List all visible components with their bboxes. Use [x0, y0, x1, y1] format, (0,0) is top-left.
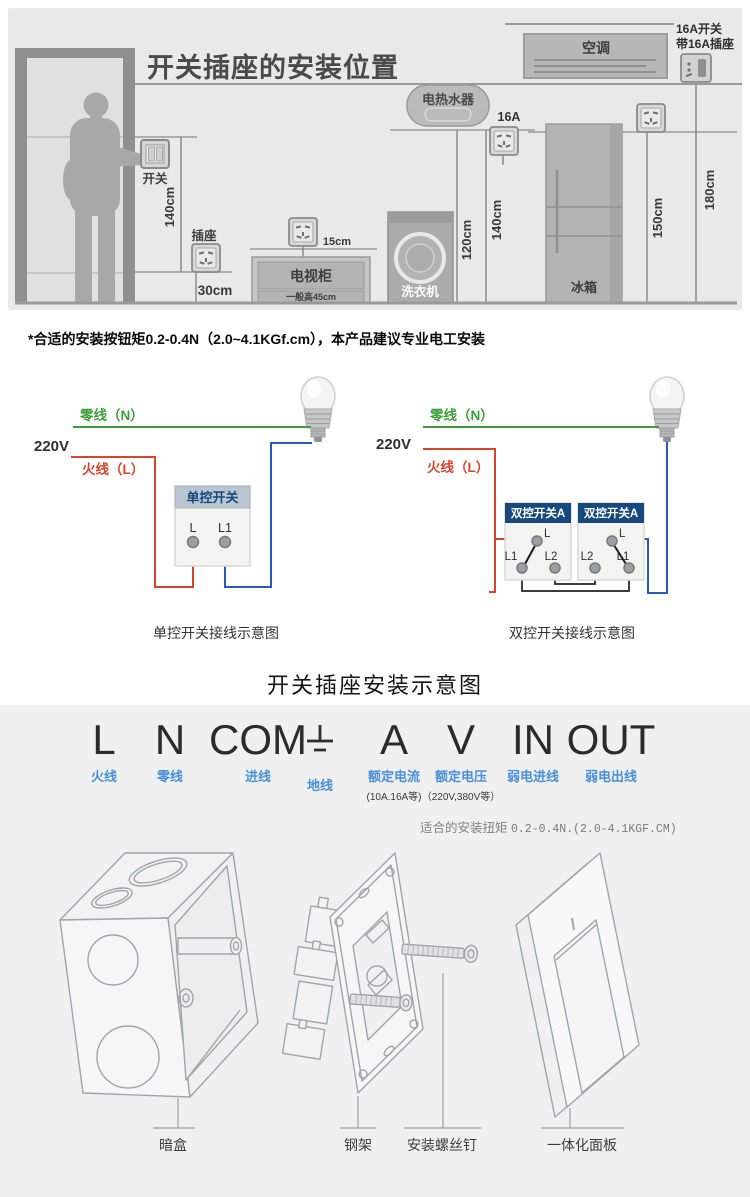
b-terminal-l1: [624, 563, 634, 573]
bulb-icon: [301, 377, 335, 442]
part-caption-screws: 安装螺丝钉: [382, 1135, 502, 1155]
dim-switch-height: 140cm: [162, 187, 177, 227]
socket-icon-heater: [490, 127, 518, 155]
terminal-label: 弱电出线: [559, 766, 663, 785]
ac-switch-socket-icon: [681, 54, 711, 82]
switch-box-a-title: 双控开关A: [510, 506, 565, 520]
single-switch-diagram: 零线（N） 220V 火线（L） 单控开关 L L1 单控开关接线示意图: [34, 377, 335, 641]
fridge: [546, 124, 622, 303]
legend-col-out: OUT 弱电出线: [559, 716, 663, 785]
b-terminal-l-label: L: [619, 528, 626, 540]
tv-cabinet-note: 一般高45cm: [286, 291, 336, 302]
live-label: 火线（L）: [82, 461, 144, 477]
ac-socket-label-line1: 16A开关: [676, 21, 722, 36]
installation-note: *合适的安装按钮矩0.2-0.4N（2.0~4.1KGf.cm），本产品建议专业…: [28, 329, 728, 349]
a-terminal-l-label: L: [544, 528, 551, 540]
socket-icon-low: [192, 244, 220, 272]
b-terminal-l2-label: L2: [581, 551, 594, 563]
flush-box-drawing: [60, 852, 258, 1097]
socket-label: 插座: [191, 228, 217, 243]
dim-heater-height: 140cm: [489, 200, 504, 240]
product-detail-page: 开关插座的安装位置 开关 140cm 插座 30cm 15cm 电视柜 一般高4…: [0, 0, 750, 1197]
dim-washer-height: 120cm: [459, 220, 474, 260]
ac-label: 空调: [582, 40, 610, 56]
steel-frame-drawing: [282, 853, 423, 1093]
double-switch-caption: 双控开关接线示意图: [509, 625, 635, 641]
installation-parts-drawing: [0, 840, 750, 1132]
a-terminal-l1: [517, 563, 527, 573]
installation-position-diagram: 开关插座的安装位置 开关 140cm 插座 30cm 15cm 电视柜 一般高4…: [0, 0, 750, 318]
socket-icon-fridge: [637, 104, 665, 132]
part-caption-panel: 一体化面板: [522, 1135, 642, 1155]
double-switch-diagram: 零线（N） 220V 火线（L） 双控开关A 双控开关A L L1 L2 L L…: [376, 377, 684, 641]
terminal-l: [188, 537, 199, 548]
fridge-label: 冰箱: [571, 280, 597, 295]
dim-fridge-height: 150cm: [650, 198, 665, 238]
single-switch-caption: 单控开关接线示意图: [153, 625, 279, 641]
wall-switch-icon: [141, 140, 169, 168]
voltage-label: 220V: [34, 438, 69, 455]
neutral-label: 零线（N）: [429, 407, 494, 423]
a-terminal-l2-label: L2: [545, 551, 558, 563]
water-heater-label: 电热水器: [422, 92, 475, 107]
torque-label: 适合的安装扭矩: [420, 821, 508, 835]
switch-box-title: 单控开关: [186, 490, 238, 505]
socket-icon-tv: [289, 218, 317, 246]
b-terminal-l1-label: L1: [617, 551, 630, 563]
tv-cabinet-label: 电视柜: [290, 268, 332, 284]
terminal-l1-label: L1: [218, 521, 232, 535]
live-label: 火线（L）: [427, 459, 489, 475]
dim-ac-height: 180cm: [702, 170, 717, 210]
section-title: 开关插座安装示意图: [0, 668, 750, 700]
b-terminal-l: [607, 536, 617, 546]
torque-value: 0.2-0.4N.(2.0-4.1KGF.CM): [511, 823, 677, 836]
dim-socket-height: 30cm: [198, 283, 233, 298]
b-terminal-l2: [590, 563, 600, 573]
a-terminal-l: [532, 536, 542, 546]
terminal-l-label: L: [190, 521, 197, 535]
terminal-symbol: OUT: [559, 716, 663, 764]
ac-socket-label-line2: 带16A插座: [676, 36, 734, 51]
heater-socket-amp: 16A: [498, 110, 521, 124]
switch-box-b-title: 双控开关A: [583, 506, 638, 520]
a-terminal-l2: [550, 563, 560, 573]
panel-drawing: [516, 853, 639, 1117]
a-terminal-l1-label: L1: [505, 551, 518, 563]
terminal-note: （220V,380V等）: [409, 788, 513, 803]
wiring-diagrams: 零线（N） 220V 火线（L） 单控开关 L L1 单控开关接线示意图 零线（…: [0, 370, 750, 660]
torque-note: 适合的安装扭矩 0.2-0.4N.(2.0-4.1KGF.CM): [420, 817, 677, 836]
washer-label: 洗衣机: [401, 284, 439, 299]
bulb-icon: [650, 377, 684, 442]
voltage-label: 220V: [376, 436, 411, 453]
part-caption-box: 暗盒: [113, 1135, 233, 1155]
top-title: 开关插座的安装位置: [147, 52, 399, 83]
terminal-l1: [220, 537, 231, 548]
neutral-label: 零线（N）: [79, 407, 144, 423]
dim-tv-gap: 15cm: [323, 236, 351, 248]
switch-label: 开关: [142, 171, 168, 186]
